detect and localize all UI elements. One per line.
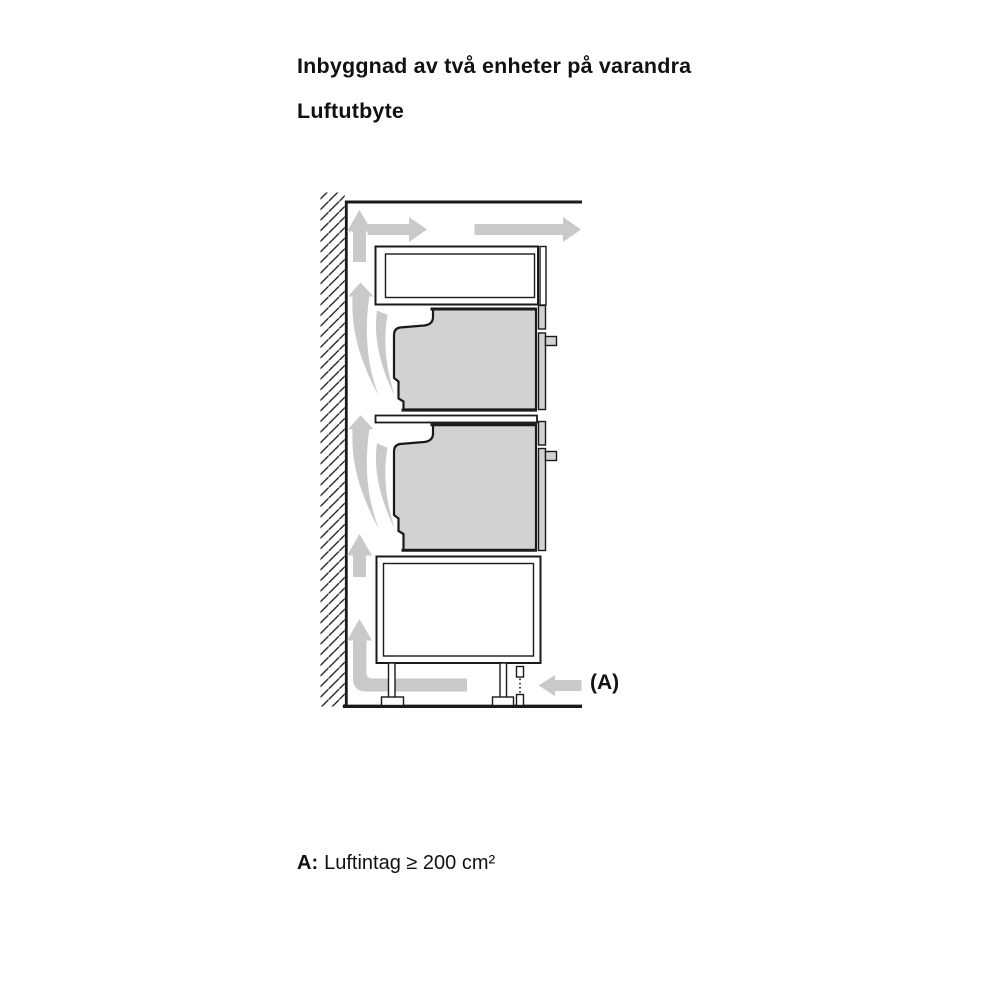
air-intake-arrow	[539, 675, 582, 696]
airflow-swoosh-upper	[376, 311, 395, 396]
installation-diagram	[310, 185, 650, 720]
plinth-gap-bottom-block	[517, 695, 524, 706]
left-leg	[389, 663, 396, 698]
bottom-compartment-outer	[377, 557, 541, 664]
upper-oven	[394, 306, 557, 411]
airflow-up-arrowhead-upper	[348, 283, 374, 297]
plinth-gap-top-block	[517, 667, 524, 678]
right-leg-foot	[493, 697, 514, 706]
section-subtitle: Luftutbyte	[297, 99, 404, 124]
lower-oven	[394, 422, 557, 551]
upper-oven-handle-knob	[546, 337, 557, 346]
lower-oven-front	[539, 422, 557, 551]
lower-oven-panel-strip	[539, 422, 546, 446]
plinth-gap-marker	[517, 667, 524, 706]
airflow-up-arrow-mid	[347, 534, 372, 577]
right-leg	[500, 663, 507, 698]
top-compartment-outer	[376, 247, 539, 305]
top-front-strip	[540, 247, 546, 306]
left-leg-foot	[382, 697, 404, 706]
legend-caption: A:Luftintag ≥ 200 cm²	[297, 852, 495, 875]
airflow-swoosh-lower	[376, 443, 395, 528]
wall-hatched	[321, 193, 347, 707]
upper-oven-front	[539, 306, 557, 410]
airflow-up-arrowhead-lower	[348, 415, 374, 429]
upper-oven-panel-strip	[539, 306, 546, 330]
airflow-right-arrow-inner	[368, 217, 428, 242]
airflow-right-arrow-outer	[475, 217, 582, 242]
lower-oven-door-strip	[539, 449, 546, 551]
airflow-motif-lower	[348, 415, 395, 529]
legend-text: Luftintag ≥ 200 cm²	[324, 852, 495, 874]
air-intake-callout: (A)	[590, 671, 619, 695]
intermediate-shelf	[376, 416, 538, 423]
lower-oven-handle-knob	[546, 452, 557, 461]
airflow-curved-shaft-lower	[352, 428, 379, 529]
upper-oven-door-strip	[539, 333, 546, 410]
legend-key: A:	[297, 852, 318, 874]
page-title: Inbyggnad av två enheter på varandra	[297, 54, 691, 79]
upper-oven-body	[394, 309, 536, 410]
lower-oven-body	[394, 425, 536, 551]
airflow-up-arrow-top	[347, 210, 372, 262]
wall-hatch-band	[321, 193, 345, 707]
airflow-curved-shaft-upper	[352, 296, 379, 397]
